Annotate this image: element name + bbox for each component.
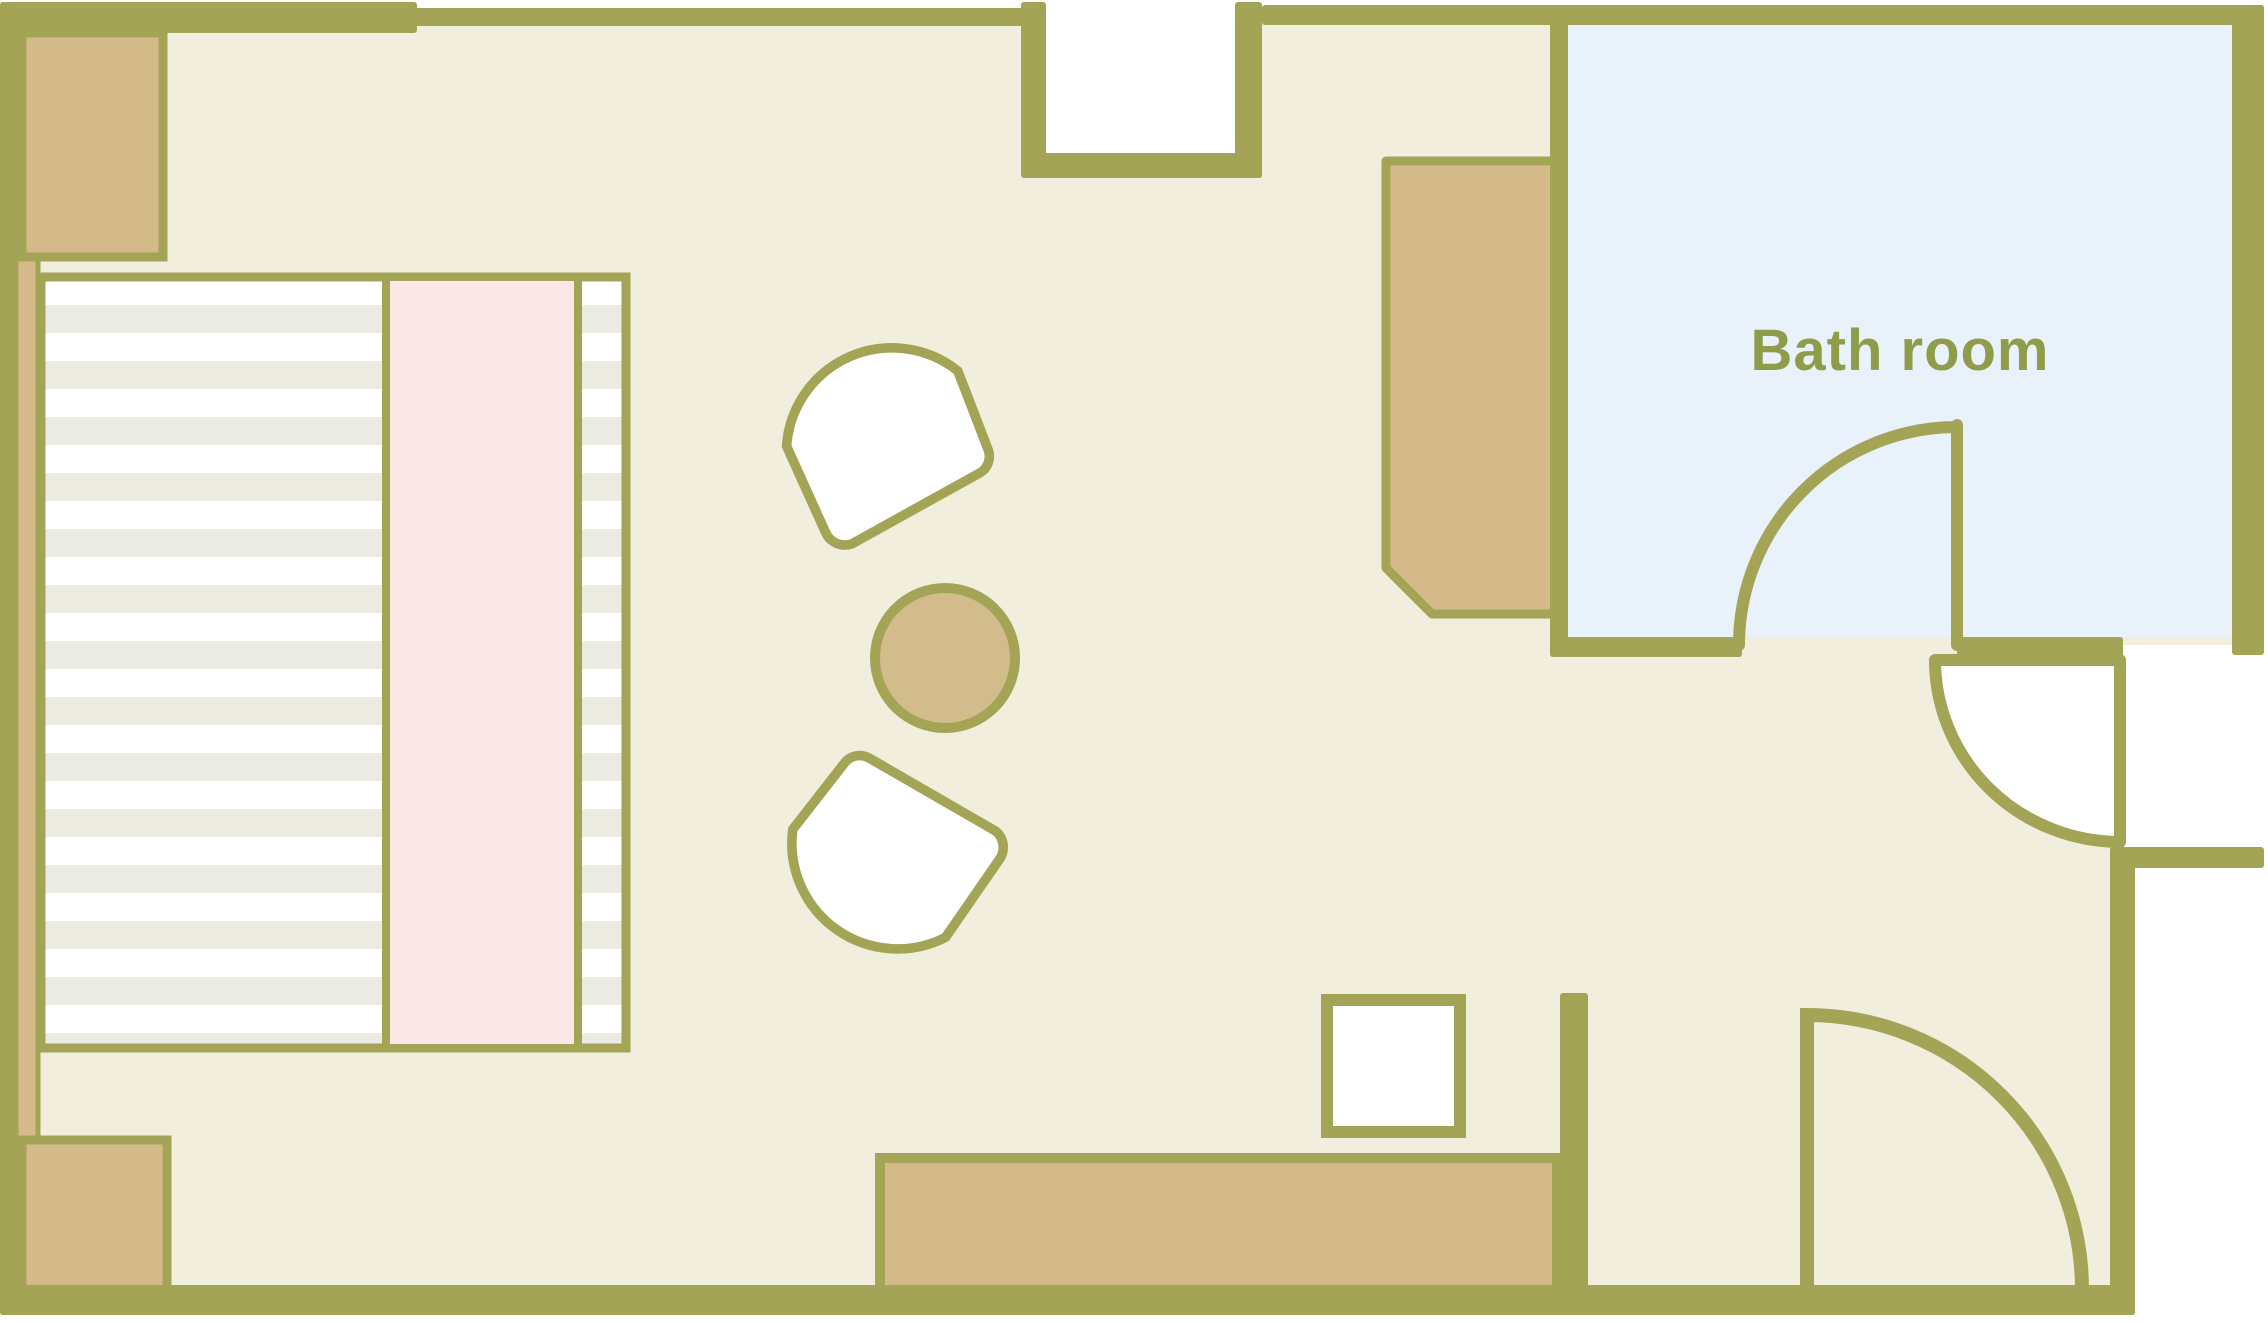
- nightstand-bottom: [22, 1140, 167, 1300]
- wall-notch-left: [1021, 2, 1046, 178]
- floor-plan: Bath room: [0, 0, 2268, 1323]
- wall-bathroom-left: [1550, 23, 1568, 657]
- round-table: [875, 588, 1015, 728]
- bed-headboard: [16, 250, 38, 1145]
- wall-bottom: [0, 1285, 2135, 1315]
- nightstand-top: [22, 33, 163, 257]
- bed-runner: [386, 277, 578, 1048]
- wall-notch-bottom: [1021, 153, 1262, 178]
- bathroom-label: Bath room: [1568, 322, 2232, 380]
- wall-top-middle: [417, 8, 1021, 26]
- wall-top-left-thick: [0, 2, 417, 33]
- wall-bathroom-bottom-left: [1550, 637, 1742, 657]
- wall-top-right: [1262, 5, 2264, 25]
- floor-plan-drawing: [0, 0, 2268, 1323]
- right-wall-recess: [2123, 645, 2268, 847]
- wall-right-lower: [2110, 847, 2135, 1315]
- wall-left: [0, 2, 18, 1315]
- stool: [1327, 1000, 1460, 1132]
- wall-entry-partition: [1560, 993, 1588, 1315]
- wardrobe: [1386, 161, 1556, 614]
- top-wall-recess: [1046, 0, 1235, 155]
- desk: [880, 1158, 1557, 1290]
- wall-right-upper: [2232, 5, 2264, 655]
- wall-notch-right: [1235, 2, 1262, 178]
